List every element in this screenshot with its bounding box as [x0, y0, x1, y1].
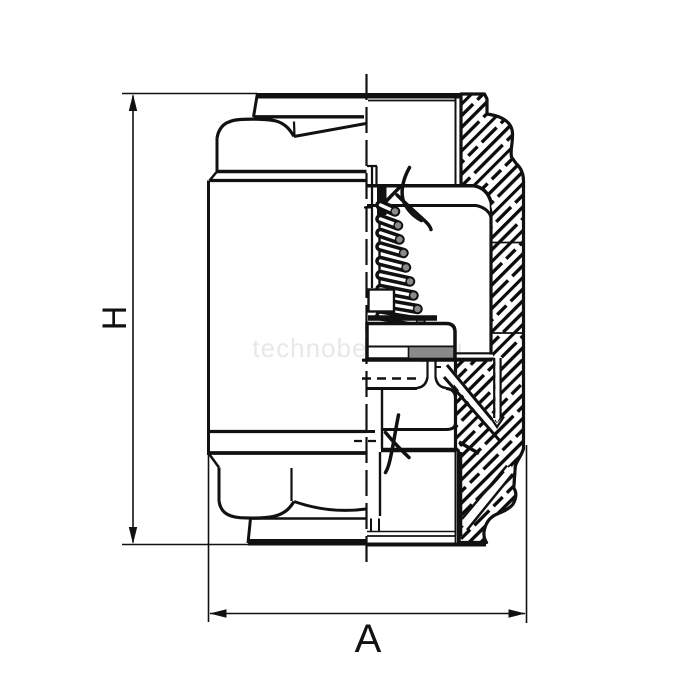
svg-text:H: H: [96, 306, 134, 331]
svg-text:A: A: [355, 617, 382, 661]
